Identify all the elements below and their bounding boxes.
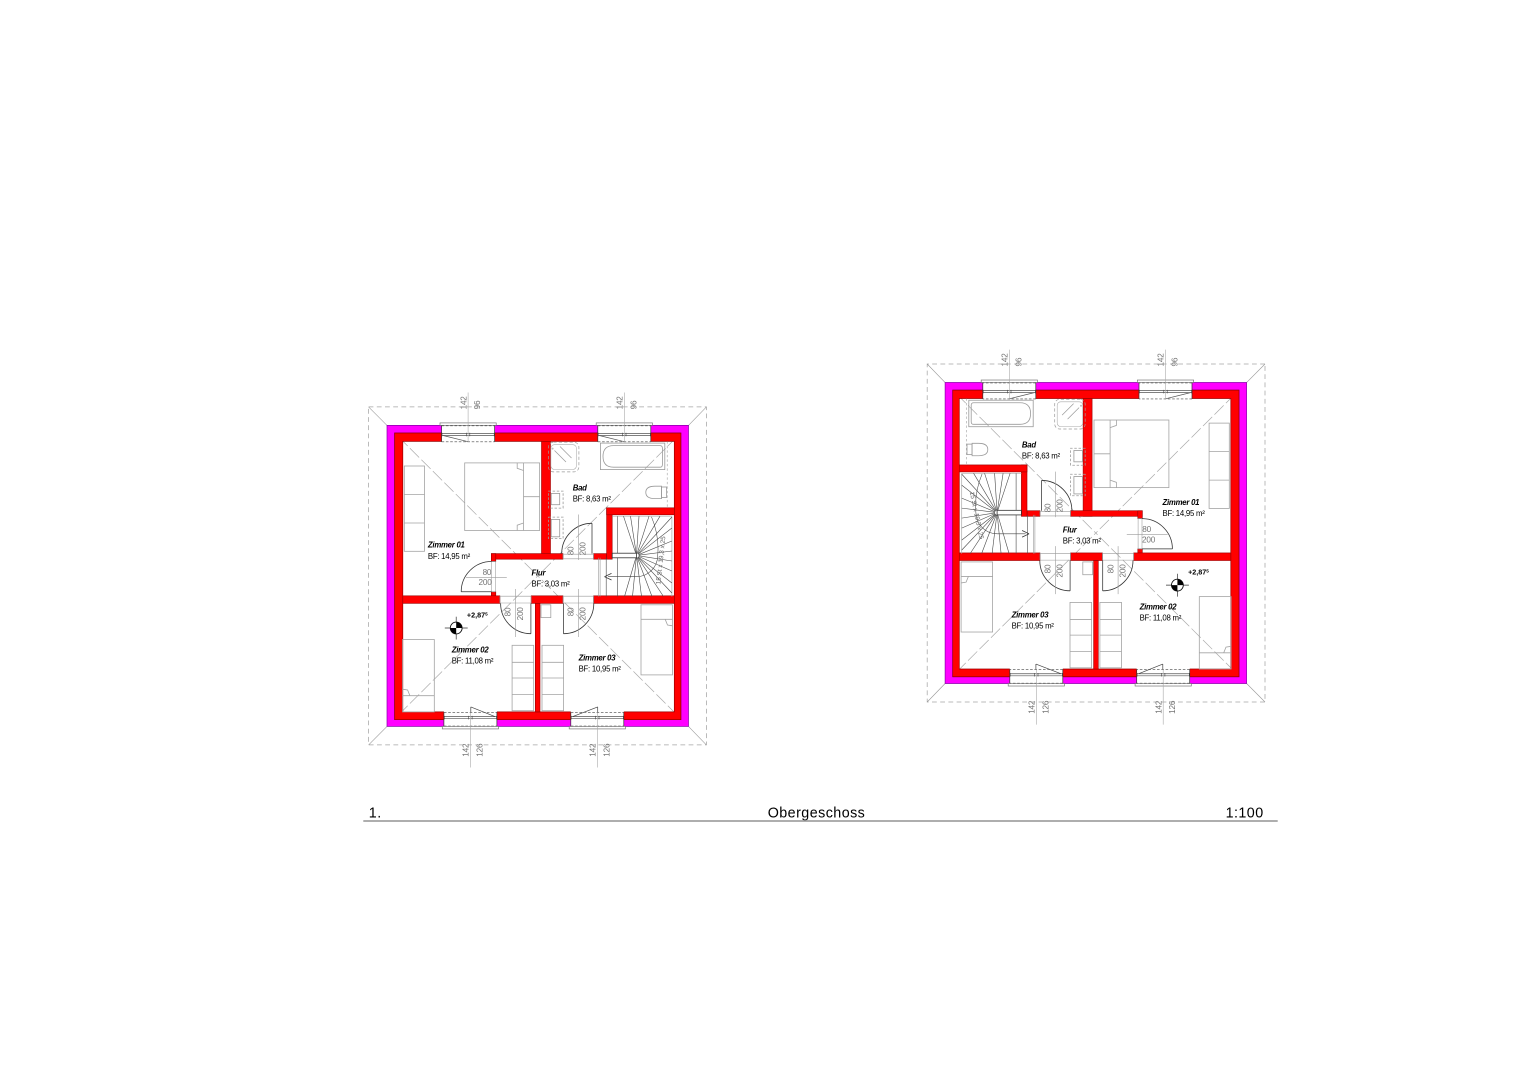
svg-text:Bad: Bad <box>573 484 587 493</box>
svg-text:126: 126 <box>475 743 484 757</box>
svg-text:Flur: Flur <box>532 568 547 577</box>
svg-text:200: 200 <box>516 607 525 621</box>
svg-text:126: 126 <box>1168 700 1177 714</box>
svg-text:142: 142 <box>1157 353 1166 367</box>
svg-text:142: 142 <box>1154 700 1163 714</box>
svg-text:126: 126 <box>602 743 611 757</box>
svg-text:200: 200 <box>1119 564 1128 578</box>
svg-text:200: 200 <box>579 542 588 556</box>
svg-text:96: 96 <box>473 400 482 409</box>
svg-text:80: 80 <box>504 607 513 616</box>
svg-text:80: 80 <box>483 568 492 577</box>
svg-text:142: 142 <box>589 743 598 757</box>
svg-text:Bad: Bad <box>1022 441 1036 450</box>
svg-text:142: 142 <box>462 743 471 757</box>
svg-text:Zimmer 02: Zimmer 02 <box>451 645 490 654</box>
svg-text:1.: 1. <box>369 805 382 821</box>
svg-text:200: 200 <box>1056 499 1065 513</box>
svg-text:BF: 10,95 m²: BF: 10,95 m² <box>1012 622 1055 631</box>
svg-text:BF: 14,95 m²: BF: 14,95 m² <box>428 552 471 561</box>
svg-text:Obergeschoss: Obergeschoss <box>768 805 866 821</box>
svg-text:Zimmer 02: Zimmer 02 <box>1139 602 1178 611</box>
svg-text:200: 200 <box>1056 564 1065 578</box>
svg-text:Zimmer 03: Zimmer 03 <box>1011 611 1050 620</box>
svg-text:142: 142 <box>1028 700 1037 714</box>
svg-text:Flur: Flur <box>1063 525 1078 534</box>
svg-text:200: 200 <box>579 607 588 621</box>
svg-text:142: 142 <box>459 396 468 410</box>
svg-text:126: 126 <box>1041 700 1050 714</box>
svg-text:96: 96 <box>629 400 638 409</box>
svg-text:BF: 3,03 m²: BF: 3,03 m² <box>1063 537 1102 546</box>
svg-text:80: 80 <box>1044 503 1053 512</box>
svg-text:Zimmer 01: Zimmer 01 <box>427 541 465 550</box>
svg-text:BF: 3,03 m²: BF: 3,03 m² <box>532 579 571 588</box>
svg-text:1:100: 1:100 <box>1226 805 1264 821</box>
svg-text:200: 200 <box>1142 535 1156 544</box>
svg-text:BF: 11,08 m²: BF: 11,08 m² <box>452 656 494 665</box>
svg-text:96: 96 <box>1171 357 1180 366</box>
svg-text:BF: 14,95 m²: BF: 14,95 m² <box>1163 509 1206 518</box>
svg-text:Zimmer 03: Zimmer 03 <box>578 653 617 662</box>
svg-text:BF: 11,08 m²: BF: 11,08 m² <box>1140 614 1182 623</box>
svg-text:200: 200 <box>479 578 493 587</box>
svg-text:+2,875: +2,875 <box>1188 568 1209 577</box>
svg-text:142: 142 <box>1001 353 1010 367</box>
svg-text:BF: 10,95 m²: BF: 10,95 m² <box>579 665 622 674</box>
svg-text:142: 142 <box>616 396 625 410</box>
svg-text:96: 96 <box>1014 357 1023 366</box>
svg-text:80: 80 <box>1106 564 1115 573</box>
svg-text:80: 80 <box>1044 564 1053 573</box>
svg-text:BF: 8,63 m²: BF: 8,63 m² <box>1022 452 1061 461</box>
svg-text:80: 80 <box>1142 525 1151 534</box>
svg-text:Zimmer 01: Zimmer 01 <box>1162 498 1200 507</box>
svg-text:80: 80 <box>567 607 576 616</box>
svg-text:+2,875: +2,875 <box>467 611 488 620</box>
svg-text:BF: 8,63 m²: BF: 8,63 m² <box>573 495 612 504</box>
svg-text:80: 80 <box>567 546 576 555</box>
